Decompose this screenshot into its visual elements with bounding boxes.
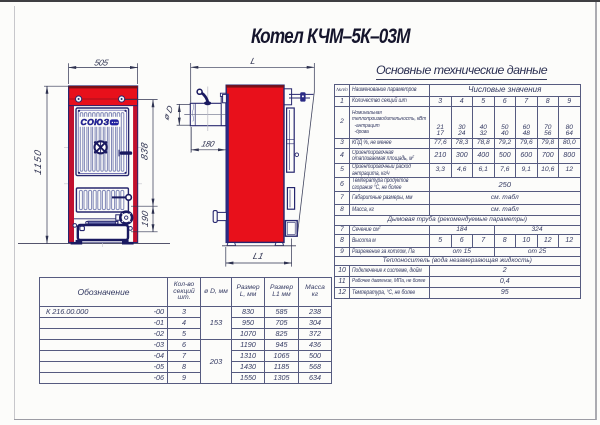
svg-text:190: 190 <box>140 209 150 227</box>
svg-text:505: 505 <box>93 58 109 68</box>
svg-text:L: L <box>250 56 257 66</box>
svg-text:ø D: ø D <box>161 103 175 122</box>
svg-text:СОЮЗ: СОЮЗ <box>81 117 110 127</box>
svg-text:180: 180 <box>200 140 215 149</box>
svg-text:838: 838 <box>140 141 151 161</box>
svg-text:1150: 1150 <box>33 148 44 176</box>
svg-text:L1: L1 <box>252 251 264 261</box>
